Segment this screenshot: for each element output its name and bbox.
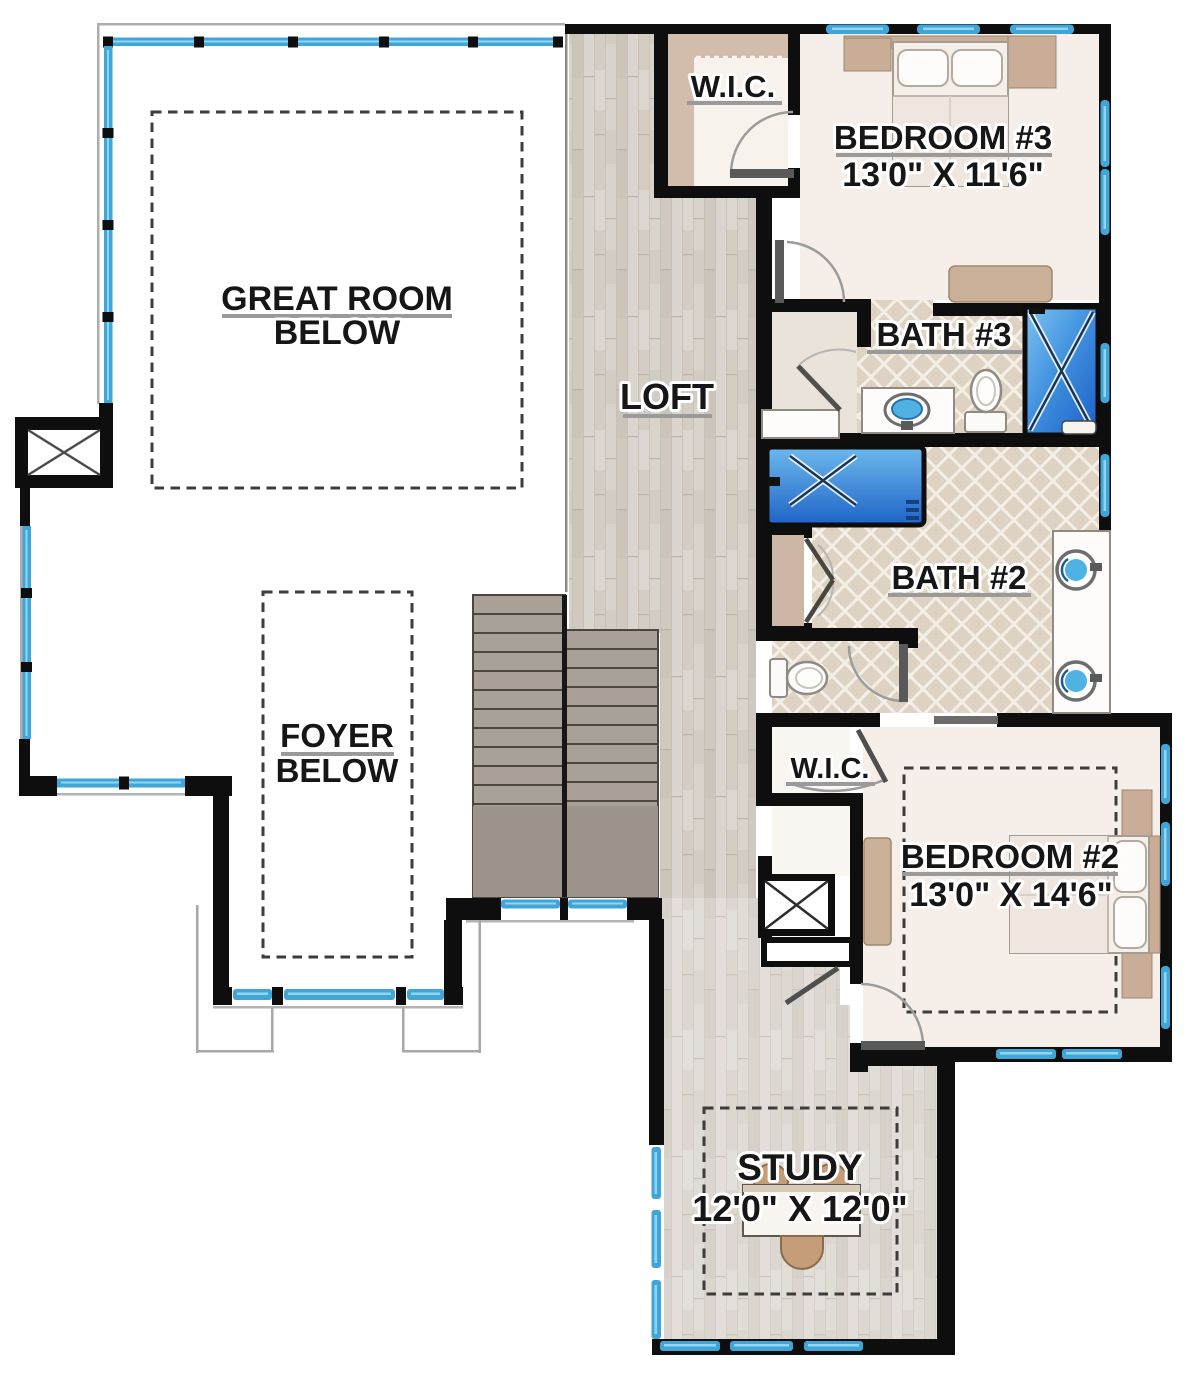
svg-text:FOYER: FOYER — [280, 717, 394, 754]
svg-text:GREAT ROOM: GREAT ROOM — [221, 280, 453, 318]
svg-text:BEDROOM #3: BEDROOM #3 — [834, 119, 1052, 156]
svg-text:W.I.C.: W.I.C. — [791, 753, 870, 785]
svg-text:STUDY: STUDY — [737, 1147, 863, 1188]
svg-text:12'0" X 12'0": 12'0" X 12'0" — [692, 1188, 907, 1229]
svg-text:BATH #3: BATH #3 — [876, 316, 1011, 353]
svg-text:13'0" X 11'6": 13'0" X 11'6" — [842, 156, 1044, 194]
svg-text:BEDROOM #2: BEDROOM #2 — [901, 838, 1119, 875]
svg-text:LOFT: LOFT — [620, 376, 714, 417]
svg-text:BATH #2: BATH #2 — [891, 559, 1026, 596]
svg-text:13'0" X 14'6": 13'0" X 14'6" — [909, 876, 1112, 914]
svg-text:BELOW: BELOW — [274, 314, 401, 352]
svg-text:BELOW: BELOW — [276, 752, 400, 789]
svg-text:W.I.C.: W.I.C. — [691, 69, 775, 104]
